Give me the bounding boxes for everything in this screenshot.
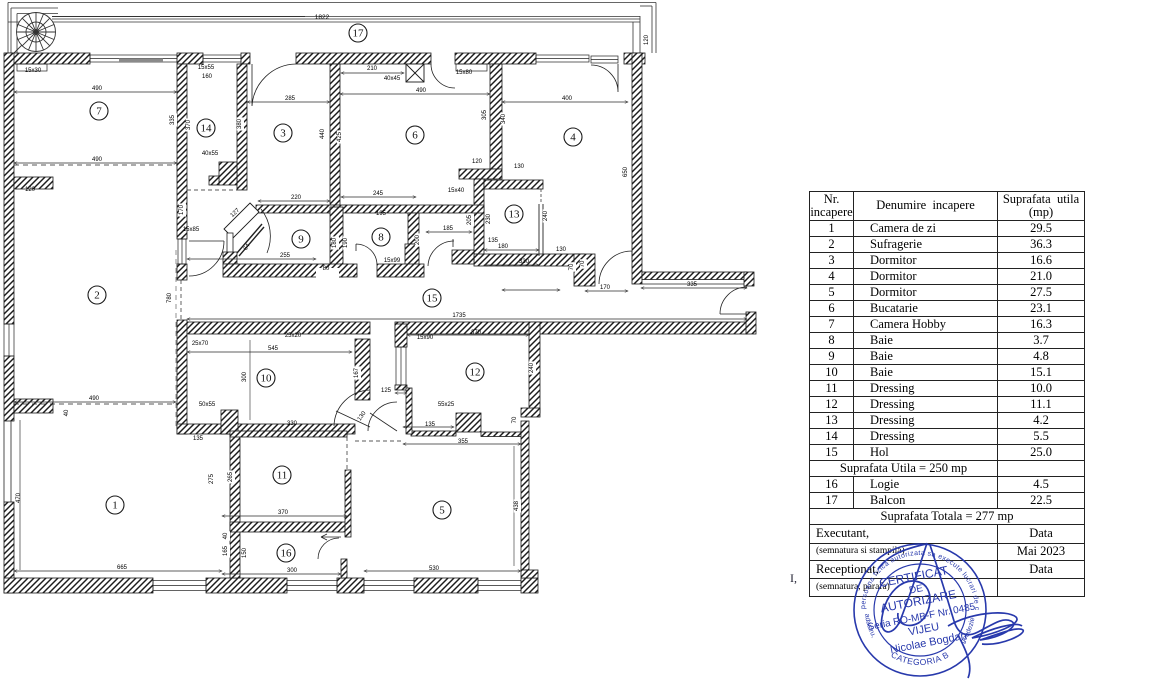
svg-text:15x40: 15x40: [448, 188, 465, 194]
svg-text:80: 80: [323, 266, 330, 272]
svg-text:180: 180: [498, 244, 509, 250]
svg-text:120: 120: [472, 159, 483, 165]
svg-text:1: 1: [112, 500, 118, 512]
svg-text:195: 195: [376, 211, 387, 217]
svg-text:135: 135: [425, 422, 436, 428]
svg-text:16: 16: [281, 548, 293, 560]
svg-text:12: 12: [470, 367, 481, 379]
svg-text:40x45: 40x45: [384, 76, 401, 82]
svg-text:50x55: 50x55: [199, 402, 216, 408]
svg-text:400: 400: [562, 96, 573, 102]
svg-text:170: 170: [600, 285, 611, 291]
svg-text:15x55: 15x55: [198, 65, 215, 71]
svg-text:330: 330: [519, 259, 530, 265]
svg-text:15x30: 15x30: [25, 68, 42, 74]
svg-text:335: 335: [687, 282, 698, 288]
svg-text:370: 370: [186, 119, 192, 130]
svg-text:70: 70: [569, 263, 575, 270]
svg-text:13: 13: [509, 209, 521, 221]
svg-text:240: 240: [543, 210, 549, 221]
svg-text:275: 275: [209, 473, 215, 484]
svg-text:490: 490: [416, 88, 427, 94]
svg-text:240: 240: [529, 362, 535, 373]
svg-text:9: 9: [298, 234, 304, 246]
svg-text:11: 11: [277, 470, 288, 482]
svg-text:120: 120: [644, 34, 650, 45]
svg-text:167: 167: [354, 367, 360, 378]
svg-text:265: 265: [228, 471, 234, 482]
svg-text:530: 530: [429, 566, 440, 572]
svg-text:17: 17: [353, 28, 365, 40]
svg-text:490: 490: [92, 157, 103, 163]
svg-text:40: 40: [64, 409, 70, 416]
svg-text:150: 150: [242, 547, 248, 558]
svg-text:330: 330: [287, 421, 298, 427]
svg-text:10: 10: [261, 373, 273, 385]
svg-text:7: 7: [96, 106, 102, 118]
svg-text:120: 120: [25, 187, 36, 193]
svg-text:335: 335: [170, 114, 176, 125]
svg-text:185: 185: [443, 226, 454, 232]
svg-text:300: 300: [287, 568, 298, 574]
svg-text:15x80: 15x80: [456, 70, 473, 76]
svg-text:160: 160: [202, 74, 213, 80]
svg-text:305: 305: [482, 109, 488, 120]
svg-text:370: 370: [471, 330, 482, 336]
svg-text:135: 135: [193, 436, 204, 442]
svg-text:130: 130: [357, 410, 368, 422]
svg-text:55x25: 55x25: [438, 402, 455, 408]
svg-text:14: 14: [201, 123, 213, 135]
svg-text:170: 170: [179, 204, 185, 215]
svg-text:70: 70: [580, 260, 586, 267]
svg-text:665: 665: [117, 565, 128, 571]
svg-text:2: 2: [94, 290, 100, 302]
svg-text:200: 200: [415, 234, 421, 245]
svg-text:180: 180: [332, 237, 338, 248]
svg-text:25x20: 25x20: [285, 333, 302, 339]
svg-text:380: 380: [237, 118, 243, 129]
svg-text:220: 220: [291, 195, 302, 201]
svg-text:40x55: 40x55: [202, 151, 219, 157]
svg-text:355: 355: [458, 439, 469, 445]
svg-text:15: 15: [427, 293, 439, 305]
svg-text:125: 125: [381, 388, 392, 394]
svg-text:490: 490: [92, 86, 103, 92]
svg-text:490: 490: [89, 396, 100, 402]
svg-text:438: 438: [514, 500, 520, 511]
svg-text:15x90: 15x90: [417, 335, 434, 341]
svg-text:245: 245: [373, 191, 384, 197]
svg-text:8: 8: [378, 232, 384, 244]
svg-text:210: 210: [367, 66, 378, 72]
svg-text:165: 165: [223, 545, 229, 556]
svg-text:440: 440: [320, 128, 326, 139]
svg-text:190: 190: [343, 237, 349, 248]
svg-text:15x99: 15x99: [384, 258, 401, 264]
svg-text:780: 780: [167, 292, 173, 303]
svg-text:255: 255: [280, 253, 291, 259]
svg-text:4: 4: [570, 132, 576, 144]
svg-text:650: 650: [623, 166, 629, 177]
svg-text:15x85: 15x85: [183, 227, 200, 233]
svg-text:70: 70: [512, 416, 518, 423]
svg-text:340: 340: [501, 113, 507, 124]
svg-text:285: 285: [285, 96, 296, 102]
svg-text:545: 545: [268, 346, 279, 352]
svg-text:230: 230: [486, 213, 492, 224]
svg-text:130: 130: [556, 247, 567, 253]
svg-text:370: 370: [278, 510, 289, 516]
svg-text:130: 130: [514, 164, 525, 170]
svg-text:1822: 1822: [315, 14, 330, 21]
svg-text:300: 300: [242, 371, 248, 382]
svg-text:3: 3: [280, 128, 286, 140]
svg-text:1735: 1735: [452, 313, 466, 319]
svg-text:25x70: 25x70: [192, 341, 209, 347]
svg-text:5: 5: [439, 505, 445, 517]
svg-text:425: 425: [337, 131, 343, 142]
svg-text:205: 205: [467, 214, 473, 225]
svg-text:40: 40: [223, 532, 229, 539]
svg-text:470: 470: [16, 492, 22, 503]
svg-text:135: 135: [488, 238, 499, 244]
svg-text:6: 6: [412, 130, 418, 142]
